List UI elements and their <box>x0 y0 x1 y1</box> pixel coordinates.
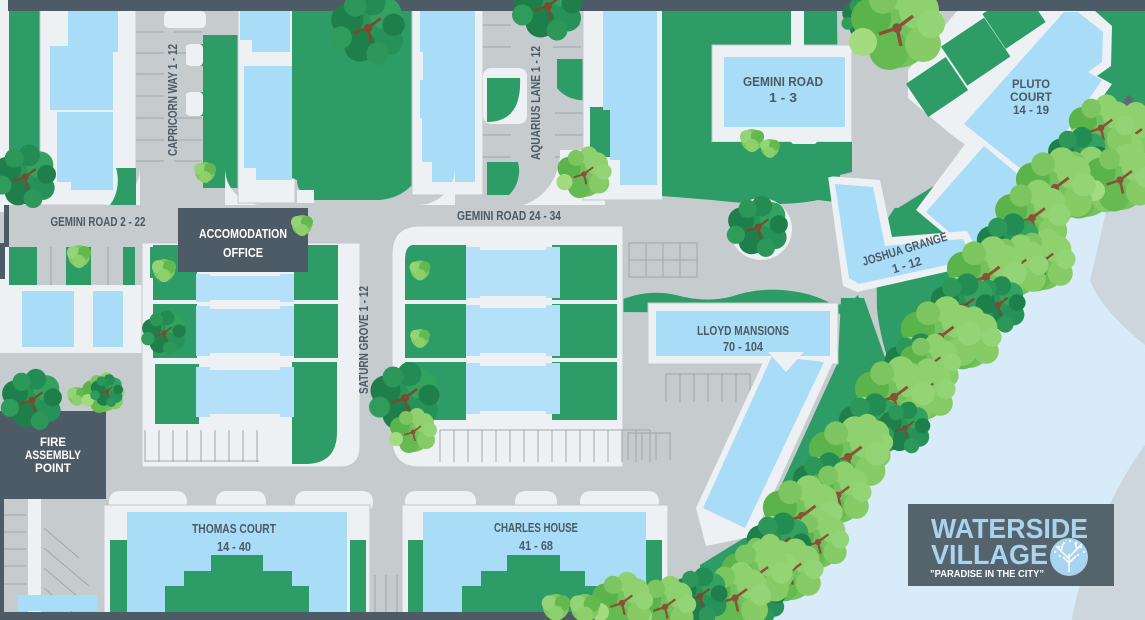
svg-text:SATURN GROVE 1 - 12: SATURN GROVE 1 - 12 <box>357 286 371 394</box>
svg-text:”PARADISE IN THE CITY”: ”PARADISE IN THE CITY” <box>930 569 1044 580</box>
svg-text:CHARLES HOUSE: CHARLES HOUSE <box>494 521 578 535</box>
svg-text:POINT: POINT <box>35 463 71 475</box>
svg-text:AQUARIUS LANE 1 - 12: AQUARIUS LANE 1 - 12 <box>529 46 543 160</box>
svg-text:41 - 68: 41 - 68 <box>519 539 553 553</box>
svg-text:GEMINI ROAD: GEMINI ROAD <box>743 75 823 89</box>
svg-text:GEMINI ROAD 24 - 34: GEMINI ROAD 24 - 34 <box>457 209 561 223</box>
svg-text:ASSEMBLY: ASSEMBLY <box>25 450 81 462</box>
svg-text:CAPRICORN WAY 1 - 12: CAPRICORN WAY 1 - 12 <box>166 44 180 156</box>
svg-text:14 - 19: 14 - 19 <box>1013 103 1049 117</box>
svg-text:70 - 104: 70 - 104 <box>723 340 763 354</box>
svg-text:VILLAGE: VILLAGE <box>931 539 1048 570</box>
svg-text:COURT: COURT <box>1010 90 1053 104</box>
svg-text:1 - 3: 1 - 3 <box>769 91 797 105</box>
svg-text:ACCOMODATION: ACCOMODATION <box>199 227 287 241</box>
svg-text:14 - 40: 14 - 40 <box>217 540 251 554</box>
svg-text:GEMINI ROAD 2 - 22: GEMINI ROAD 2 - 22 <box>51 215 146 229</box>
svg-text:OFFICE: OFFICE <box>223 246 263 260</box>
svg-text:LLOYD MANSIONS: LLOYD MANSIONS <box>697 324 789 338</box>
svg-text:FIRE: FIRE <box>40 437 66 449</box>
svg-text:THOMAS COURT: THOMAS COURT <box>192 522 276 536</box>
svg-text:PLUTO: PLUTO <box>1012 77 1050 91</box>
